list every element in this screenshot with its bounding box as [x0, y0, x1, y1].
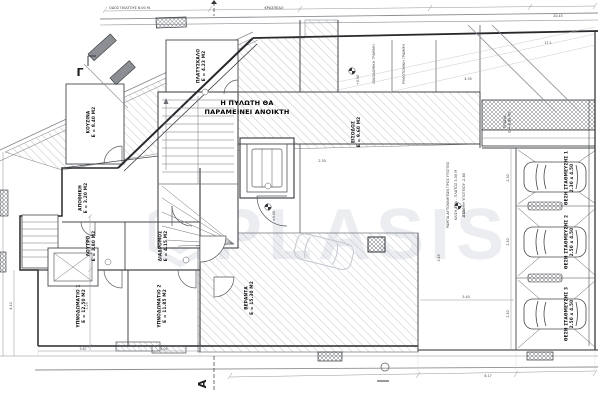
- room-label-veranda: ΒΕΡΑΝΤΑ Ε = 15.30 Μ2: [244, 281, 256, 315]
- svg-text:Ε = 9.60 Μ2: Ε = 9.60 Μ2: [356, 117, 362, 148]
- svg-text:2.50 x 4.50: 2.50 x 4.50: [569, 228, 575, 257]
- dim-left: 2.90: [85, 236, 89, 243]
- svg-text:2.50 x 4.50: 2.50 x 4.50: [569, 300, 575, 329]
- svg-text:ΚΟΥΖΙΝΑ: ΚΟΥΖΙΝΑ: [86, 110, 92, 133]
- door-tag: [183, 257, 189, 263]
- section-marker-gamma: Γ: [76, 66, 83, 79]
- dim-misc: 5.40: [462, 295, 469, 299]
- car-icon: [524, 162, 586, 192]
- svg-text:ΚΛΙΣΗ 18% - ΠΛΑΤΟΣ 3.00 Μ: ΚΛΙΣΗ 18% - ΠΛΑΤΟΣ 3.00 Μ: [454, 170, 458, 221]
- car-icon: [524, 299, 586, 329]
- dim-misc: 2.30: [318, 159, 325, 163]
- svg-text:ΠΑΡΑΜΕΙΝΕΙ ΑΝΟΙΚΤΗ: ΠΑΡΑΜΕΙΝΕΙ ΑΝΟΙΚΤΗ: [204, 108, 289, 116]
- dim-left: 3.25: [85, 302, 89, 309]
- door-tag: [202, 89, 208, 95]
- dim-misc: 17.1: [544, 41, 551, 45]
- level-value: -0.02: [462, 210, 466, 219]
- door-tag: [265, 183, 271, 189]
- dim-stall: 2.50: [506, 238, 510, 245]
- section-marker-alpha: Α: [196, 379, 209, 388]
- svg-text:Ε = 3.20 Μ2: Ε = 3.20 Μ2: [83, 183, 89, 214]
- dim-stall: 2.30: [506, 174, 510, 181]
- svg-text:ΘΕΣΗ ΣΤΑΘΜΕΥΣΗΣ 1: ΘΕΣΗ ΣΤΑΘΜΕΥΣΗΣ 1: [564, 151, 570, 205]
- svg-text:ΔΙΑΔΡΟΜΟΣ: ΔΙΑΔΡΟΜΟΣ: [158, 231, 164, 262]
- room-label-storage: ΑΠΟΘΗΚΗ Ε = 3.20 Μ2: [78, 183, 90, 214]
- svg-text:Ε = 15.30 Μ2: Ε = 15.30 Μ2: [249, 281, 255, 315]
- svg-text:ΕΙΣΟΔΟΣ: ΕΙΣΟΔΟΣ: [351, 121, 357, 143]
- curb-label: ΚΡΑΣΠΕΔΟ: [264, 6, 283, 10]
- floor-plan-drawing: PLASIS: [0, 0, 600, 400]
- svg-text:Ε = 4.23 Μ2: Ε = 4.23 Μ2: [201, 51, 207, 82]
- level-value: +0.90: [356, 75, 360, 85]
- door-tag: [105, 259, 111, 265]
- street-line-label: ΡΥΜΟΤΟΜΙΚΗ ΓΡΑΜΜΗ: [402, 44, 406, 85]
- room-label-hall: ΔΙΑΔΡΟΜΟΣ Ε = 4.15 Μ2: [158, 231, 170, 262]
- dim-bottom: 3.67: [79, 347, 86, 351]
- room-label-entrance: ΕΙΣΟΔΟΣ Ε = 9.60 Μ2: [351, 117, 363, 148]
- svg-text:Ε = 8.40 Μ2: Ε = 8.40 Μ2: [91, 107, 97, 138]
- dim-left: 4.10: [9, 302, 13, 309]
- svg-text:ΠΡΑΣΙΑ: ΠΡΑΣΙΑ: [503, 115, 507, 128]
- street-name: ΟΔΟΣ ΠΛΑΤΟΥΣ 8.00 Μ.: [109, 6, 151, 10]
- svg-text:ΠΛΑΤΥΣΚΑΛΟ: ΠΛΑΤΥΣΚΑΛΟ: [196, 49, 202, 84]
- svg-text:ΡΑΜΠΑ ΑΥΤΟΚΙΝΗΤΩΝ ΠΡΟΣ ΥΠΟΓΕΙΟ: ΡΑΜΠΑ ΑΥΤΟΚΙΝΗΤΩΝ ΠΡΟΣ ΥΠΟΓΕΙΟ: [446, 162, 450, 229]
- car-icon: [524, 227, 586, 257]
- room-label-kitchen: ΚΟΥΖΙΝΑ Ε = 8.40 Μ2: [86, 107, 98, 138]
- svg-text:ΥΠΝΟΔΩΜΑΤΙΟ 1: ΥΠΝΟΔΩΜΑΤΙΟ 1: [76, 284, 82, 328]
- svg-text:ΑΠΟΘΗΚΗ: ΑΠΟΘΗΚΗ: [78, 185, 84, 211]
- dim-misc: 4.35: [464, 77, 471, 81]
- parking-area: [518, 150, 596, 348]
- level-value: ±0.00: [272, 211, 276, 221]
- planter-strip: [482, 100, 595, 130]
- floor-plan-canvas: PLASIS: [0, 0, 600, 400]
- svg-text:ΘΕΣΗ ΣΤΑΘΜΕΥΣΗΣ 3: ΘΕΣΗ ΣΤΑΘΜΕΥΣΗΣ 3: [564, 287, 570, 341]
- stall-divider: [528, 202, 562, 210]
- svg-text:ΘΕΣΗ ΣΤΑΘΜΕΥΣΗΣ 2: ΘΕΣΗ ΣΤΑΘΜΕΥΣΗΣ 2: [564, 215, 570, 269]
- svg-text:Ε = 11.85 Μ2: Ε = 11.85 Μ2: [162, 289, 168, 323]
- svg-text:ΒΕΡΑΝΤΑ: ΒΕΡΑΝΤΑ: [244, 286, 250, 310]
- svg-text:Ε = 4.15 Μ2: Ε = 4.15 Μ2: [163, 231, 169, 262]
- svg-text:2.30 x 4.50: 2.30 x 4.50: [569, 164, 575, 193]
- stall-divider: [528, 274, 562, 282]
- canopy-slab: [156, 17, 186, 28]
- dim-stall: 2.50: [506, 310, 510, 317]
- svg-text:Ε = 3.80 Μ2: Ε = 3.80 Μ2: [91, 231, 97, 262]
- room-label-landing: ΠΛΑΤΥΣΚΑΛΟ Ε = 4.23 Μ2: [196, 49, 208, 84]
- svg-text:Η ΠΥΛΩΤΗ ΘΑ: Η ΠΥΛΩΤΗ ΘΑ: [220, 99, 273, 107]
- dim-misc: 3.45: [437, 254, 441, 261]
- svg-text:Ε = 8.90 Μ2: Ε = 8.90 Μ2: [508, 111, 512, 133]
- dim-bottom: 3.05: [160, 347, 167, 351]
- building-line-label: ΟΙΚΟΔΟΜΙΚΗ ΓΡΑΜΜΗ: [372, 44, 376, 84]
- svg-text:ΥΠΝΟΔΩΜΑΤΙΟ 2: ΥΠΝΟΔΩΜΑΤΙΟ 2: [157, 284, 163, 328]
- room-label-bedroom-2: ΥΠΝΟΔΩΜΑΤΙΟ 2 Ε = 11.85 Μ2: [157, 284, 169, 328]
- dim-bottom: 8.17: [484, 374, 491, 378]
- dim-top: 20.45: [553, 14, 562, 18]
